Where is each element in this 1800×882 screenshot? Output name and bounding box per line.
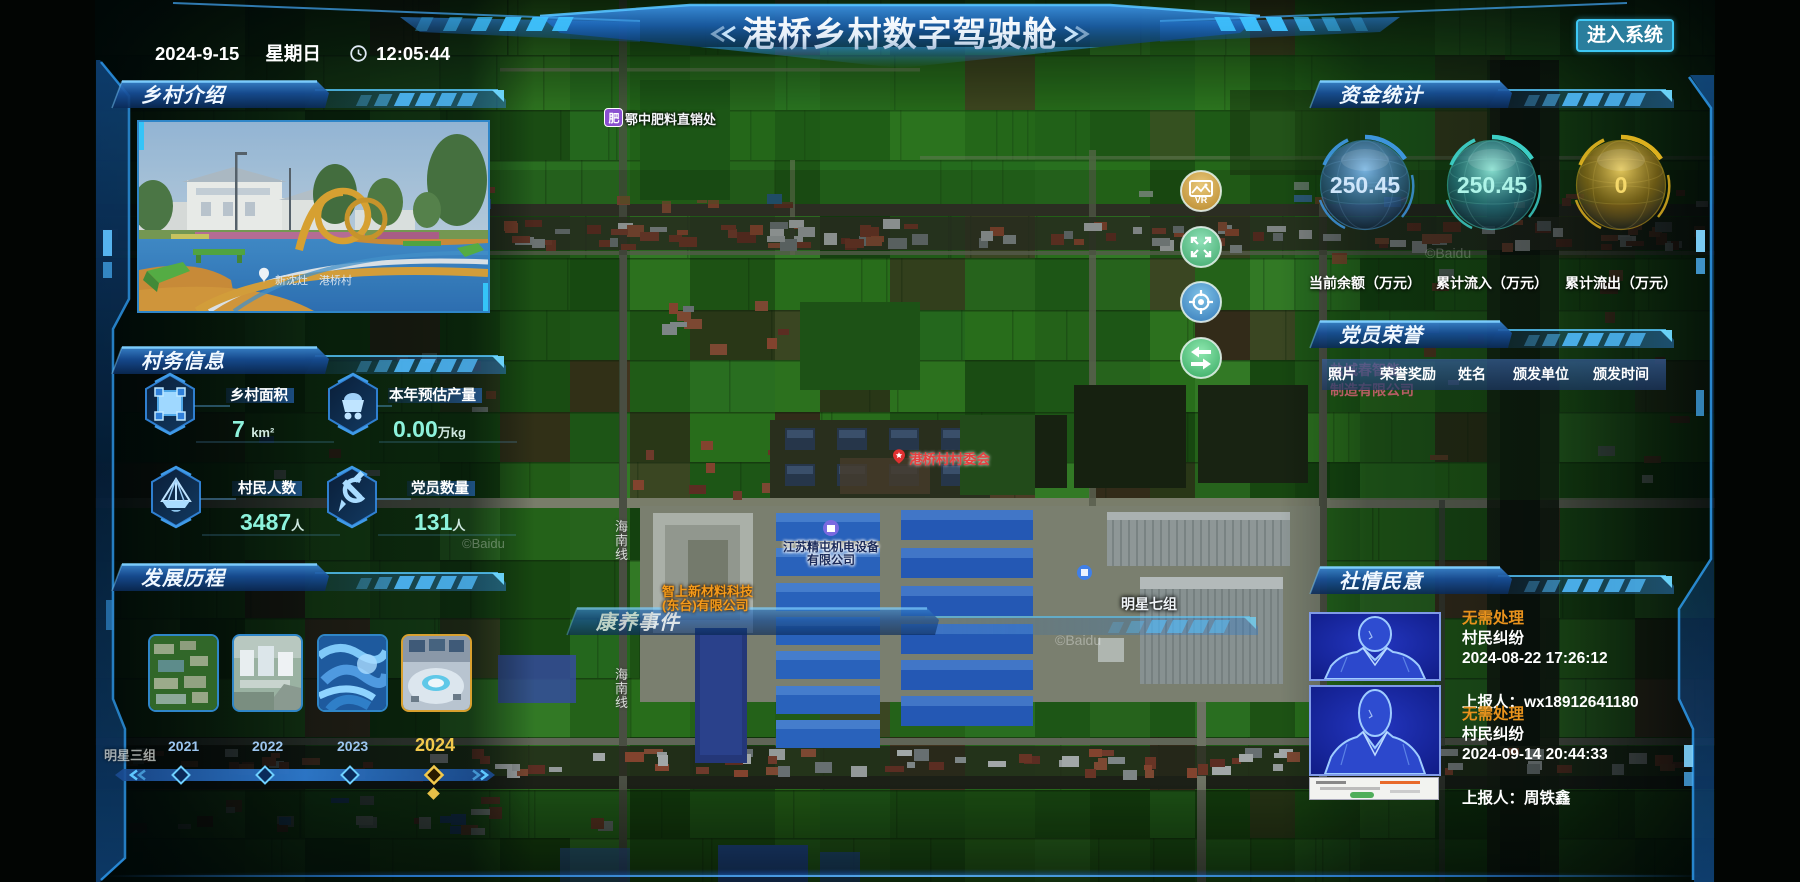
svg-text:0: 0 [1615, 172, 1628, 198]
svg-text:新沈灶 港桥村: 新沈灶 港桥村 [275, 273, 352, 287]
svg-text:250.45: 250.45 [1457, 172, 1528, 198]
svg-text:港桥乡村数字驾驶舱: 港桥乡村数字驾驶舱 [743, 15, 1058, 54]
svg-text:VR: VR [1195, 195, 1208, 205]
svg-text:党员荣誉: 党员荣誉 [1339, 324, 1425, 347]
svg-text:发展历程: 发展历程 [141, 567, 227, 590]
svg-text:村务信息: 村务信息 [141, 350, 225, 373]
svg-text:250.45: 250.45 [1330, 172, 1401, 198]
svg-text:乡村介绍: 乡村介绍 [141, 84, 227, 107]
svg-text:资金统计: 资金统计 [1339, 84, 1425, 107]
svg-text:康养事件: 康养事件 [595, 611, 681, 634]
svg-text:社情民意: 社情民意 [1339, 570, 1425, 593]
